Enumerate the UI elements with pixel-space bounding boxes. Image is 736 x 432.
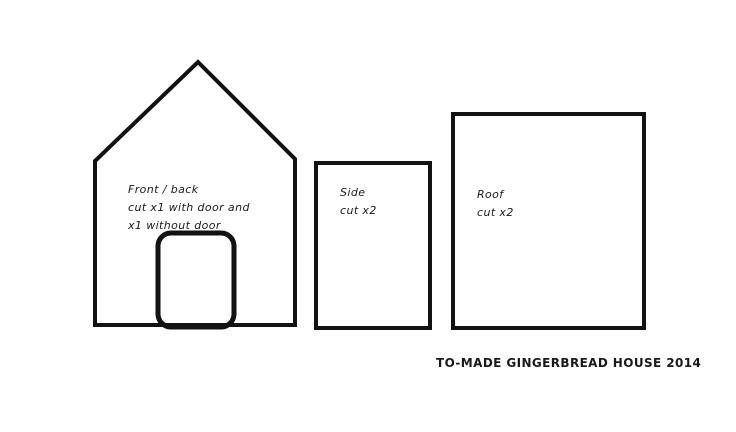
front-back-label-line-3: x1 without door: [128, 217, 250, 235]
caption-text: TO-MADE GINGERBREAD HOUSE 2014: [436, 356, 701, 370]
front-back-panel-label: Front / back cut x1 with door and x1 wit…: [128, 181, 250, 235]
side-panel-label: Side cut x2: [340, 184, 377, 220]
side-label-line-2: cut x2: [340, 202, 377, 220]
side-label-line-1: Side: [340, 184, 377, 202]
door-cutout-outline: [158, 233, 234, 327]
front-back-label-line-1: Front / back: [128, 181, 250, 199]
roof-panel-label: Roof cut x2: [477, 186, 514, 222]
roof-label-line-2: cut x2: [477, 204, 514, 222]
gingerbread-template-diagram: Front / back cut x1 with door and x1 wit…: [0, 0, 736, 432]
front-back-label-line-2: cut x1 with door and: [128, 199, 250, 217]
roof-label-line-1: Roof: [477, 186, 514, 204]
